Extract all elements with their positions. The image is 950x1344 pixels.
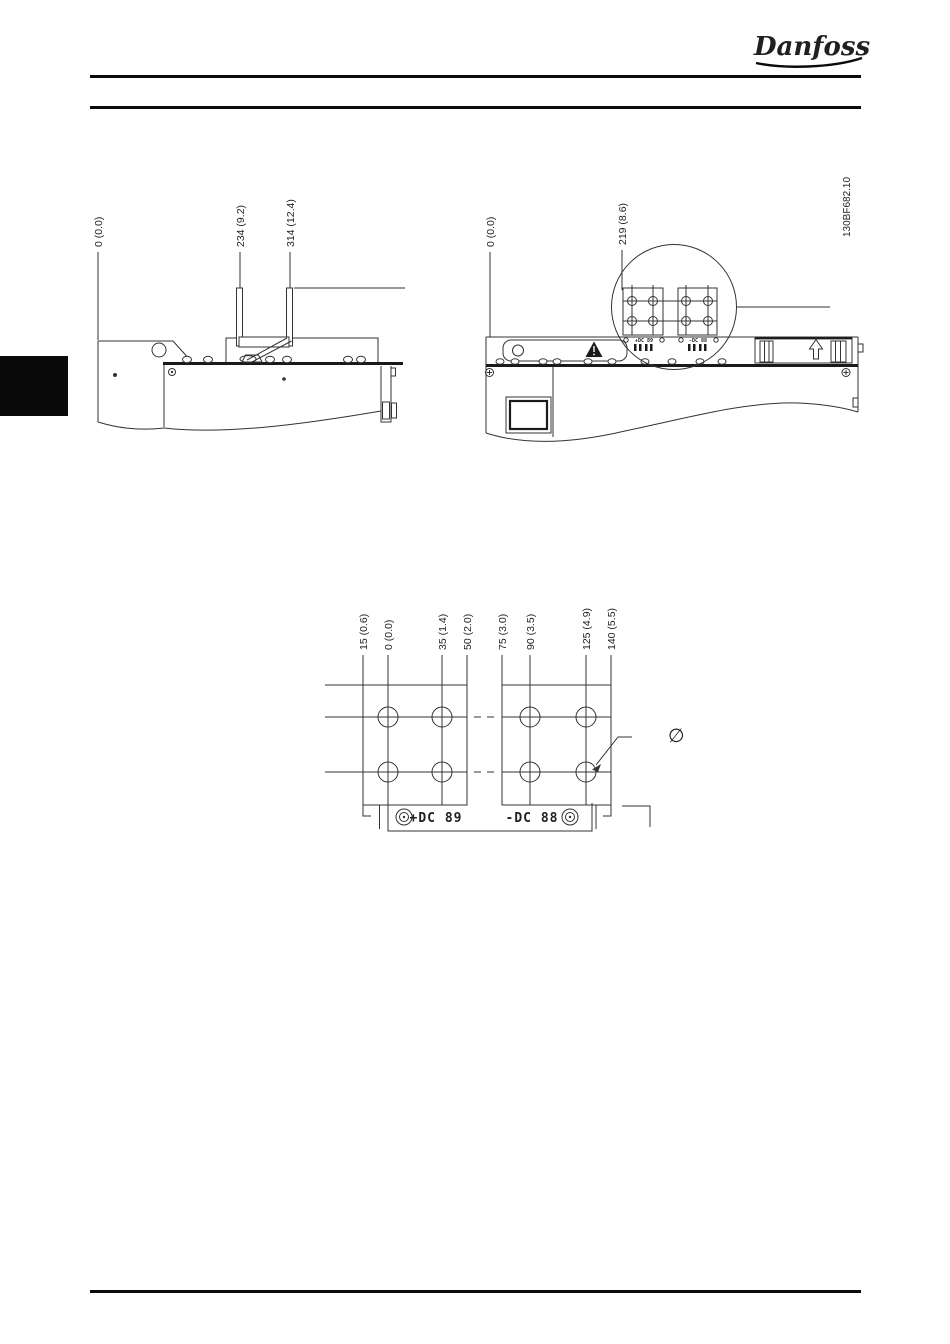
dimension-label: 15 (0.6) [358, 614, 370, 650]
drive-front-face [486, 367, 858, 441]
terminal-marking-left: +DC 89 [624, 338, 664, 351]
terminal-marking-text: +DC 89 [635, 338, 653, 344]
top-edge-tabs [183, 356, 366, 363]
dimension-leader-lines [98, 252, 405, 340]
enclosure-left-panel [98, 341, 191, 429]
figure-side-view: 0 (0.0) 234 (9.2) 314 (12.4) [80, 190, 420, 440]
panel-cutout-inner [510, 401, 547, 429]
dc-terminal-detail: +DC 89 -DC 88 [612, 245, 737, 370]
danfoss-logo: Danfoss [748, 24, 870, 72]
break-wave-line [486, 403, 858, 442]
warning-triangle-icon [586, 342, 603, 358]
dimension-label: 125 (4.9) [581, 608, 593, 650]
dimension-label: 234 (9.2) [235, 205, 247, 247]
mounting-hole [513, 345, 524, 356]
dimension-label: 35 (1.4) [437, 614, 449, 650]
torx-screw-icon [679, 338, 683, 342]
figure-terminal-dimensions: 15 (0.6) 0 (0.0) 35 (1.4) 50 (2.0) 75 (3… [320, 595, 690, 840]
corner-screw-icon [169, 369, 176, 376]
dimension-label: 90 (3.5) [525, 614, 537, 650]
logo-wordmark: Danfoss [753, 32, 870, 62]
footer-rule [90, 1290, 861, 1293]
side-nub [858, 344, 863, 352]
dc-busbars [237, 288, 293, 362]
terminal-label-plus-dc: +DC 89 [410, 811, 463, 826]
torx-screw-icon [624, 338, 628, 342]
centerlines [325, 660, 611, 805]
terminal-label-minus-dc: -DC 88 [506, 811, 559, 826]
terminal-marking-right: -DC 88 [679, 338, 718, 351]
manual-page: Danfoss 0 (0.0) 234 (9.2) 314 (12.4) [0, 0, 950, 1344]
terminal-label-strip: +DC 89 -DC 88 [363, 803, 650, 831]
busbar-plates [325, 660, 611, 805]
dimension-label: 75 (3.0) [497, 614, 509, 650]
up-arrow-icon [810, 340, 823, 360]
header-rule-bottom [90, 106, 861, 109]
enclosure-body [163, 338, 403, 430]
panel-cutout [506, 397, 551, 433]
diameter-symbol: ∅ [668, 725, 685, 747]
dimension-leader-lines [363, 655, 611, 685]
fan-section [755, 337, 852, 363]
dimension-label: 140 (5.5) [606, 608, 618, 650]
drive-top-strip [486, 337, 864, 433]
dimension-label: 219 (8.6) [617, 203, 629, 245]
torx-screw-icon [714, 338, 718, 342]
terminal-marking-text: -DC 88 [689, 338, 707, 344]
screw-dot [282, 377, 286, 381]
corner-screw-icon [486, 369, 494, 377]
dimension-label: 0 (0.0) [93, 217, 105, 247]
artwork-id: 130BF682.10 [842, 177, 853, 237]
diameter-callout: ∅ [592, 725, 685, 772]
dimension-label: 0 (0.0) [383, 620, 395, 650]
chapter-tab-marker [0, 356, 68, 416]
bolt-holes [378, 707, 596, 782]
side-nub [853, 398, 858, 407]
screw-dot [113, 373, 117, 377]
figure-top-view: 130BF682.10 0 (0.0) 219 (8.6) [475, 155, 865, 455]
corner-screw-icon [842, 369, 850, 377]
torx-screw-icon [562, 809, 578, 825]
dimension-label: 314 (12.4) [285, 199, 297, 247]
dimension-label: 0 (0.0) [485, 217, 497, 247]
right-end-cap [381, 366, 397, 422]
busbar-bracket [239, 337, 289, 347]
dimension-label: 50 (2.0) [462, 614, 474, 650]
header-rule-top [90, 75, 861, 78]
torx-screw-icon [660, 338, 664, 342]
